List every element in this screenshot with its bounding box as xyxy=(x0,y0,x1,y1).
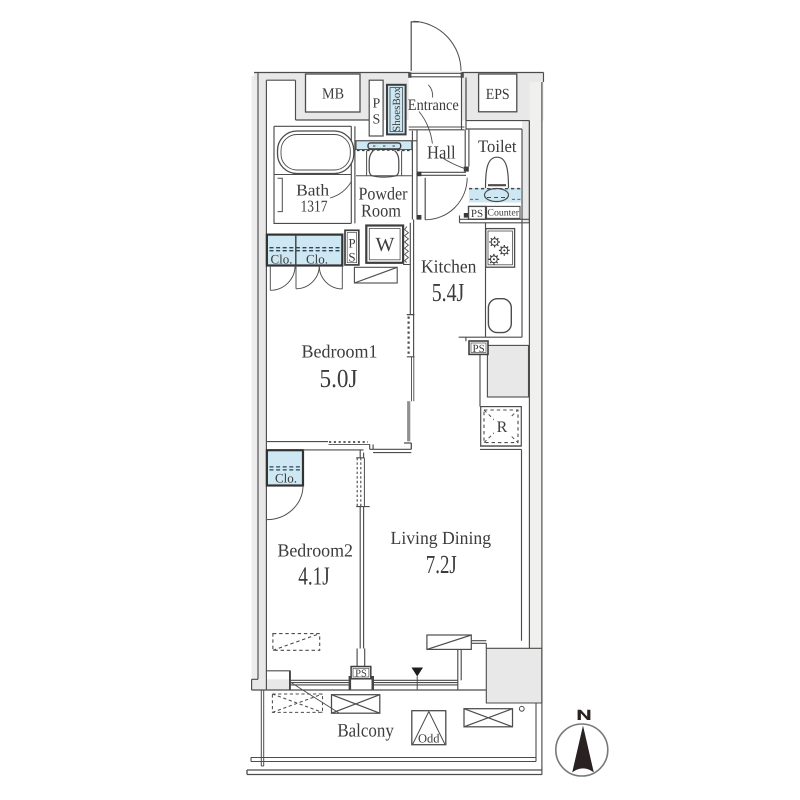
svg-text:S: S xyxy=(348,249,355,264)
svg-text:Clo.: Clo. xyxy=(306,252,328,267)
svg-text:4.1J: 4.1J xyxy=(298,561,330,590)
svg-text:Odd: Odd xyxy=(418,731,440,745)
svg-text:ShoesBox: ShoesBox xyxy=(391,87,403,132)
svg-text:R: R xyxy=(497,419,508,436)
svg-text:EPS: EPS xyxy=(486,86,510,103)
svg-text:P: P xyxy=(348,235,355,250)
svg-text:Counter: Counter xyxy=(487,208,519,219)
svg-text:Bedroom2: Bedroom2 xyxy=(277,542,353,562)
svg-text:Clo.: Clo. xyxy=(270,252,292,267)
svg-text:Clo.: Clo. xyxy=(275,471,297,486)
svg-text:S: S xyxy=(373,113,381,128)
svg-text:MB: MB xyxy=(322,86,344,103)
svg-text:W: W xyxy=(375,234,394,256)
svg-text:PS: PS xyxy=(355,669,367,680)
svg-text:5.4J: 5.4J xyxy=(432,278,465,307)
svg-text:P: P xyxy=(373,97,381,112)
svg-text:PS: PS xyxy=(472,343,484,355)
svg-text:Toilet: Toilet xyxy=(478,136,517,156)
svg-text:PS: PS xyxy=(471,208,483,220)
svg-text:Balcony: Balcony xyxy=(337,721,394,742)
svg-text:1317: 1317 xyxy=(301,196,328,215)
svg-text:Entrance: Entrance xyxy=(408,97,459,114)
svg-text:5.0J: 5.0J xyxy=(320,364,358,393)
svg-text:7.2J: 7.2J xyxy=(426,550,457,579)
svg-text:Room: Room xyxy=(361,200,401,220)
svg-text:Bedroom1: Bedroom1 xyxy=(302,342,378,362)
svg-text:Kitchen: Kitchen xyxy=(421,257,477,277)
svg-text:Living Dining: Living Dining xyxy=(391,529,492,549)
svg-text:Hall: Hall xyxy=(427,143,456,163)
